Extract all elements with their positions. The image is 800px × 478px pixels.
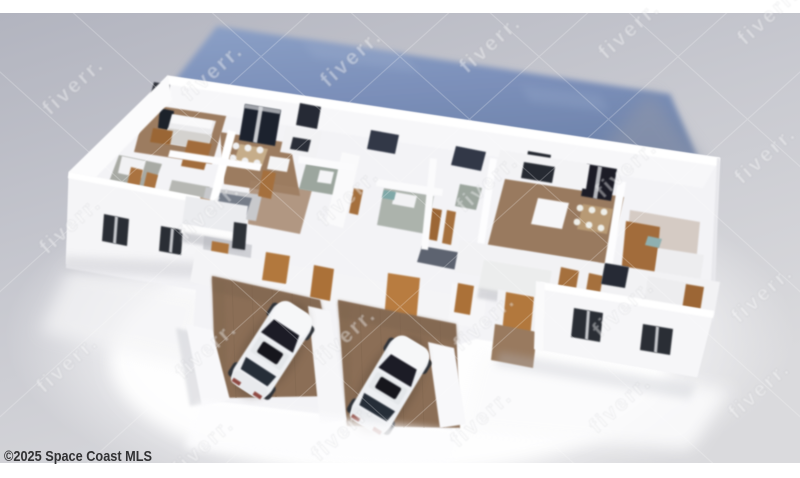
svg-text:©2025 Space Coast MLS: ©2025 Space Coast MLS — [4, 448, 152, 465]
